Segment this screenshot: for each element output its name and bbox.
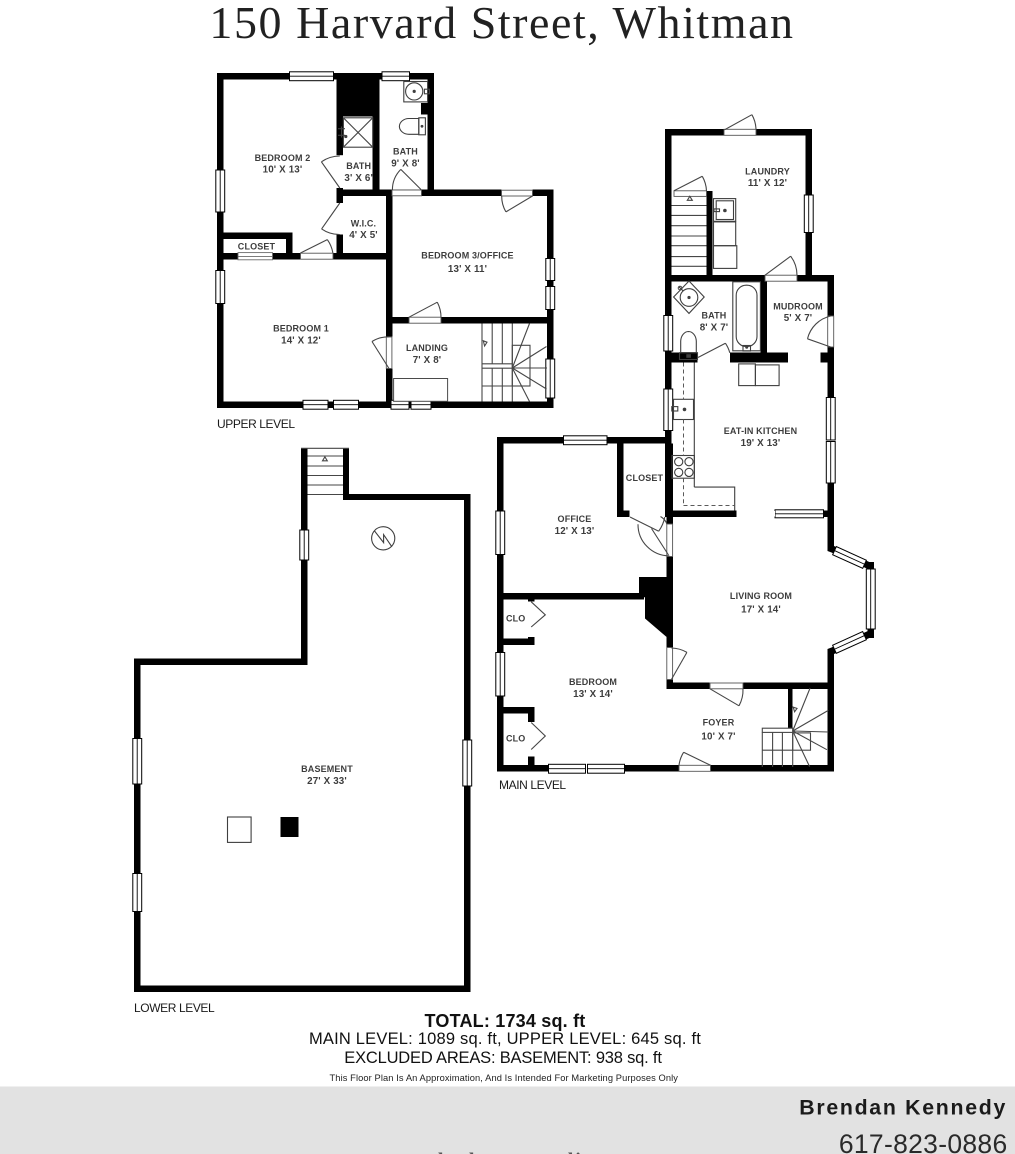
svg-text:Brendan Kennedy: Brendan Kennedy: [799, 1096, 1007, 1120]
svg-text:BEDROOM13' X 14': BEDROOM13' X 14': [569, 677, 617, 700]
svg-text:CLOSET: CLOSET: [238, 241, 276, 251]
svg-text:BEDROOM 210' X 13': BEDROOM 210' X 13': [255, 153, 311, 176]
svg-text:150 Harvard Street, Whitman: 150 Harvard Street, Whitman: [209, 0, 794, 48]
svg-text:LAUNDRY11' X 12': LAUNDRY11' X 12': [745, 167, 790, 190]
svg-text:CLOSET: CLOSET: [626, 473, 664, 483]
svg-text:UPPER LEVEL: UPPER LEVEL: [217, 417, 295, 431]
svg-text:W.I.C.4' X 5': W.I.C.4' X 5': [349, 219, 378, 241]
svg-text:BATH9' X 8': BATH9' X 8': [391, 147, 420, 170]
svg-text:LOWER LEVEL: LOWER LEVEL: [134, 1001, 215, 1015]
svg-text:TOTAL: 1734 sq. ft: TOTAL: 1734 sq. ft: [425, 1011, 586, 1031]
svg-text:This Floor Plan Is An Approxim: This Floor Plan Is An Approximation, And…: [330, 1073, 679, 1083]
svg-text:MAIN LEVEL: 1089 sq. ft, UPPER: MAIN LEVEL: 1089 sq. ft, UPPER LEVEL: 64…: [309, 1030, 701, 1048]
svg-text:BASEMENT27' X 33': BASEMENT27' X 33': [301, 764, 353, 787]
svg-text:CLO: CLO: [506, 734, 525, 744]
svg-text:MAIN LEVEL: MAIN LEVEL: [499, 778, 566, 792]
svg-text:617-823-0886: 617-823-0886: [839, 1129, 1008, 1154]
svg-text:BEDROOM 114' X 12': BEDROOM 114' X 12': [273, 324, 329, 347]
svg-text:OFFICE12' X 13': OFFICE12' X 13': [555, 514, 595, 537]
svg-text:BATH3' X 6': BATH3' X 6': [344, 161, 373, 184]
svg-text:CLO: CLO: [506, 613, 525, 623]
svg-text:BATH8' X 7': BATH8' X 7': [700, 311, 729, 334]
svg-text:EXCLUDED AREAS: BASEMENT: 938: EXCLUDED AREAS: BASEMENT: 938 sq. ft: [344, 1049, 662, 1067]
svg-text:the home studio: the home studio: [429, 1150, 595, 1154]
